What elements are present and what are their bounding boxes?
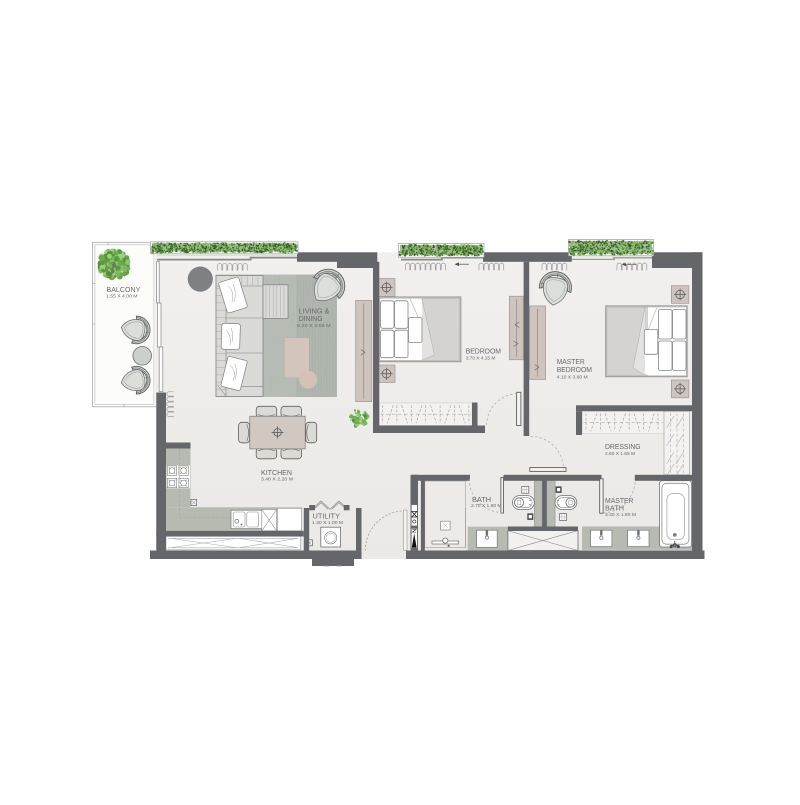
svg-text:DRESSING: DRESSING <box>605 444 641 451</box>
svg-text:3.40 X 2.20 M: 3.40 X 2.20 M <box>261 477 293 483</box>
svg-text:2.60 X 1.65 M: 2.60 X 1.65 M <box>605 451 635 457</box>
svg-text:BALCONY: BALCONY <box>107 287 141 294</box>
svg-text:4.10 X 3.60 M: 4.10 X 3.60 M <box>557 375 588 381</box>
svg-text:LIVING &: LIVING & <box>299 309 330 316</box>
svg-text:1.55 X 4.00 M: 1.55 X 4.00 M <box>106 293 138 299</box>
svg-text:1.30 X 1.00 M: 1.30 X 1.00 M <box>312 520 343 526</box>
svg-text:2.70 X 1.80 M: 2.70 X 1.80 M <box>471 503 502 509</box>
svg-text:KITCHEN: KITCHEN <box>261 470 292 477</box>
svg-text:DINING: DINING <box>299 316 323 323</box>
svg-text:BEDROOM: BEDROOM <box>557 367 592 374</box>
svg-text:UTILITY: UTILITY <box>313 513 341 520</box>
svg-text:5.20 X 4.55 M: 5.20 X 4.55 M <box>297 323 330 329</box>
svg-text:BATH: BATH <box>605 506 624 513</box>
svg-text:BATH: BATH <box>472 497 491 504</box>
svg-text:3.30 X 1.80 M: 3.30 X 1.80 M <box>605 512 636 518</box>
svg-text:MASTER: MASTER <box>605 498 634 505</box>
svg-text:BEDROOM: BEDROOM <box>466 349 501 356</box>
svg-text:3.70 X 4.15 M: 3.70 X 4.15 M <box>466 355 496 361</box>
svg-text:MASTER: MASTER <box>557 359 585 366</box>
